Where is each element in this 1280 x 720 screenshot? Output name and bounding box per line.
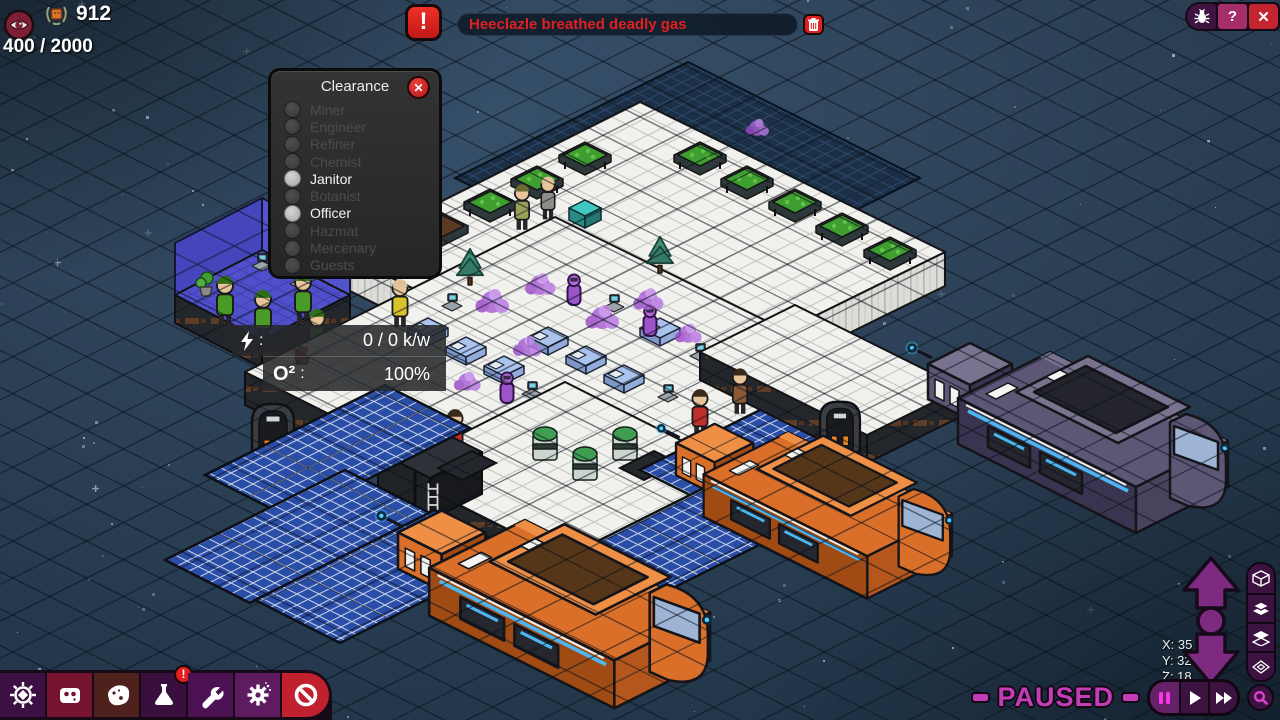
radio-icon (284, 205, 301, 222)
cube-wireframe-icon (1252, 570, 1270, 588)
paused-dash (1121, 692, 1140, 703)
game-screen: 912 400 / 2000 ! Heeclazle breathed dead… (0, 0, 1280, 720)
medal-count: 912 (76, 2, 111, 26)
build-toolbar: ! (0, 670, 332, 720)
gear-particles-icon (244, 681, 272, 709)
toolbar-robot-button[interactable] (47, 673, 92, 717)
fast-forward-icon (1216, 692, 1232, 704)
level-up-arrow-icon (1184, 558, 1238, 608)
wrench-icon (197, 682, 224, 709)
toolbar-helm-button[interactable] (0, 673, 45, 717)
prohibition-icon (292, 681, 320, 709)
clearance-item-hazmat[interactable]: Hazmat (271, 222, 439, 239)
zoom-button[interactable] (1247, 684, 1274, 711)
radio-icon (284, 118, 301, 135)
bug-icon (1194, 9, 1210, 24)
radio-icon (284, 222, 301, 239)
clearance-item-refiner[interactable]: Refiner (271, 136, 439, 153)
alert-dismiss-button[interactable] (803, 14, 824, 35)
radio-icon (284, 136, 301, 153)
playback-controls: PAUSED (971, 679, 1274, 716)
robot-icon (56, 681, 84, 709)
play-button[interactable] (1179, 682, 1208, 713)
radio-icon (284, 101, 301, 118)
layer-frame-icon (1252, 660, 1270, 674)
window-controls: ? ✕ (1185, 2, 1280, 31)
clearance-item-engineer[interactable]: Engineer (271, 118, 439, 135)
view-layer-frame-button[interactable] (1248, 651, 1274, 680)
status-tooltip: : 0 / 0 k/w O² : 100% (232, 325, 446, 391)
play-icon (1189, 691, 1201, 705)
level-arrows[interactable] (1176, 556, 1246, 693)
toolbar-wrench-button[interactable] (188, 673, 233, 717)
power-value: 0 / 0 k/w (363, 330, 430, 351)
bug-report-button[interactable] (1187, 4, 1216, 29)
capacity-readout: 400 / 2000 (3, 36, 93, 58)
toolbar-gear-button[interactable] (235, 673, 280, 717)
helm-icon (9, 681, 37, 709)
oxygen-value: 100% (384, 364, 430, 385)
power-row: : 0 / 0 k/w (232, 325, 446, 356)
toolbar-prohibition-button[interactable] (282, 673, 329, 717)
fast-forward-button[interactable] (1208, 682, 1237, 713)
asteroid-icon (103, 681, 131, 709)
layers-single-icon (1252, 630, 1270, 646)
game-world[interactable] (0, 0, 1280, 720)
radio-icon (284, 188, 301, 205)
oxygen-row: O² : 100% (263, 356, 446, 391)
pause-icon (1158, 691, 1171, 705)
flask-icon (151, 682, 177, 708)
alert-banner[interactable]: Heeclazle breathed deadly gas (457, 13, 798, 36)
level-down-arrow-icon (1184, 634, 1238, 684)
magnifier-icon (1253, 690, 1268, 705)
clearance-item-guests[interactable]: Guests (271, 257, 439, 274)
help-button[interactable]: ? (1218, 4, 1247, 29)
pause-button[interactable] (1150, 682, 1179, 713)
view-mode-controls (1246, 562, 1276, 682)
radio-icon (284, 257, 301, 274)
clearance-item-chemist[interactable]: Chemist (271, 153, 439, 170)
toolbar-flask-button[interactable]: ! (141, 673, 186, 717)
clearance-item-officer[interactable]: Officer (271, 205, 439, 222)
alert-icon: ! (405, 4, 442, 41)
radio-icon (284, 170, 301, 187)
clearance-item-mercenary[interactable]: Mercenary (271, 239, 439, 256)
toolbar-asteroid-button[interactable] (94, 673, 139, 717)
speed-pill (1147, 679, 1240, 716)
oxygen-label: O² (273, 363, 295, 386)
clearance-item-janitor[interactable]: Janitor (271, 170, 439, 187)
lightning-icon (240, 331, 254, 351)
clearance-item-miner[interactable]: Miner (271, 101, 439, 118)
medals-icon (45, 4, 68, 25)
clearance-list: Miner Engineer Refiner Chemist Janitor B… (271, 101, 439, 274)
view-layers-single-button[interactable] (1248, 622, 1274, 651)
view-layers-stack-button[interactable] (1248, 593, 1274, 622)
trash-icon (808, 18, 819, 31)
radio-icon (284, 153, 301, 170)
close-button[interactable]: ✕ (1249, 4, 1278, 29)
clearance-close-button[interactable]: ✕ (407, 76, 430, 99)
clearance-item-botanist[interactable]: Botanist (271, 187, 439, 204)
paused-dash (971, 692, 990, 703)
view-cube-button[interactable] (1248, 564, 1274, 593)
alert-message: Heeclazle breathed deadly gas (469, 16, 687, 33)
radio-icon (284, 240, 301, 257)
shuttle-purple[interactable] (906, 342, 1229, 534)
clearance-panel: Clearance ✕ Miner Engineer Refiner Chemi… (268, 68, 442, 279)
paused-label: PAUSED (997, 682, 1114, 713)
layers-stack-icon (1252, 601, 1270, 617)
